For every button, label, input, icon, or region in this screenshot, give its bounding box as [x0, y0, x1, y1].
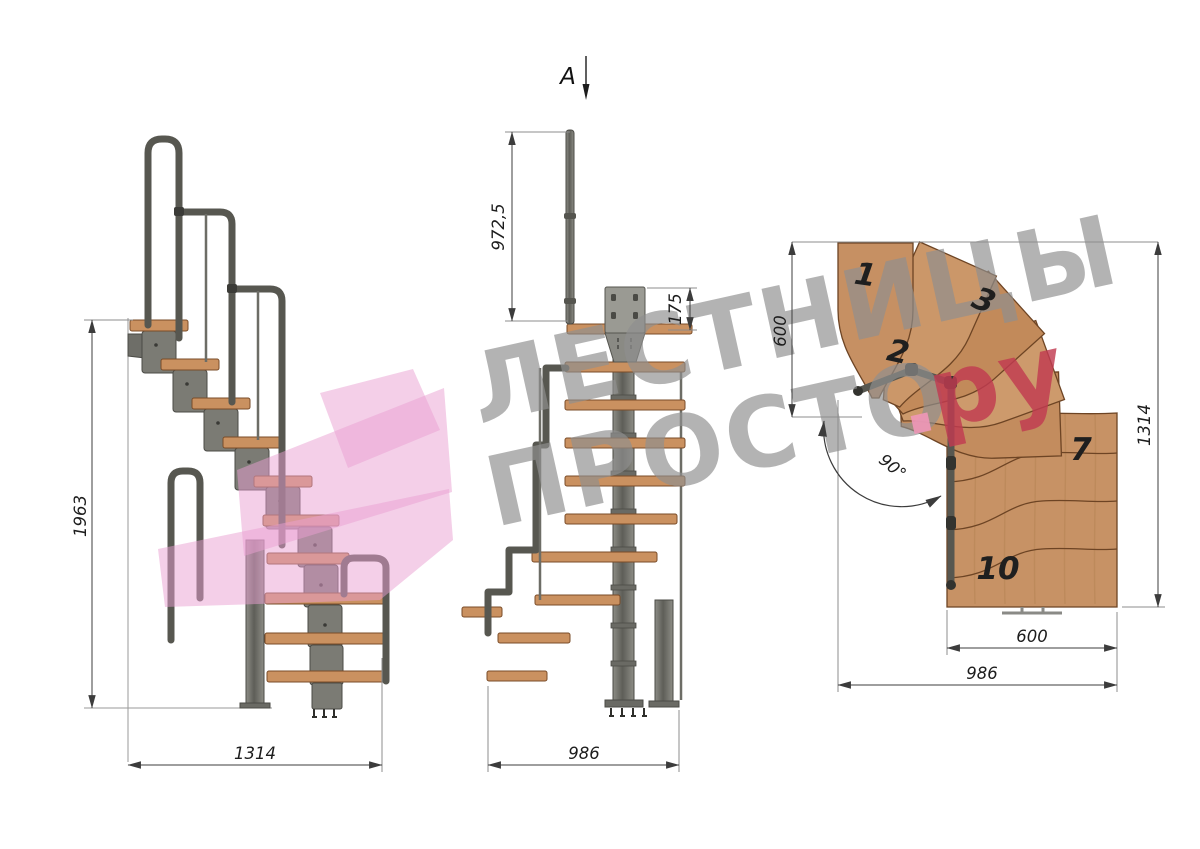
- dim-plan-total-depth-label: 1314: [1135, 404, 1154, 446]
- dim-side-width-label: 1314: [234, 744, 276, 763]
- dim-plan-step-width-label: 600: [1016, 627, 1048, 646]
- dim-front-rail-height: 972,5: [489, 132, 570, 321]
- section-arrow: [583, 84, 590, 100]
- column-foot: [605, 700, 643, 707]
- dim-front-rail-height-label: 972,5: [489, 203, 508, 250]
- module-foot-bolts: [312, 709, 337, 717]
- section-marker: A: [558, 56, 589, 100]
- dim-side-height-label: 1963: [71, 495, 90, 537]
- plan-bottom-bracket: [1002, 607, 1062, 613]
- drawing-canvas: ЛЕСТНИЦЫ ПРОСТО . ру A 1963 1314: [0, 0, 1200, 849]
- dim-plan-total-depth: 1314: [1122, 242, 1165, 607]
- section-label: A: [558, 64, 576, 90]
- handrail-post-top: [566, 130, 574, 324]
- dim-plan-total-width-label: 986: [966, 664, 998, 683]
- dim-front-bracket-label: 175: [666, 293, 685, 325]
- dim-front-width-label: 986: [568, 744, 600, 763]
- step-label-10: 10: [976, 551, 1019, 587]
- post-collar-2: [564, 298, 576, 304]
- dim-front-width: 986: [488, 686, 679, 772]
- post-collar-1: [564, 213, 576, 219]
- support-post-foot: [240, 703, 270, 708]
- column-foot-bolts: [609, 708, 647, 716]
- technical-drawing: ЛЕСТНИЦЫ ПРОСТО . ру A 1963 1314: [0, 0, 1200, 849]
- dim-side-height: 1963: [71, 320, 133, 708]
- dim-plan-flight-depth-label: 600: [771, 315, 790, 347]
- handrail-loop-1: [148, 139, 179, 338]
- front-right-post: [655, 600, 673, 703]
- step-label-7: 7: [1070, 432, 1092, 468]
- front-right-post-foot: [649, 701, 679, 707]
